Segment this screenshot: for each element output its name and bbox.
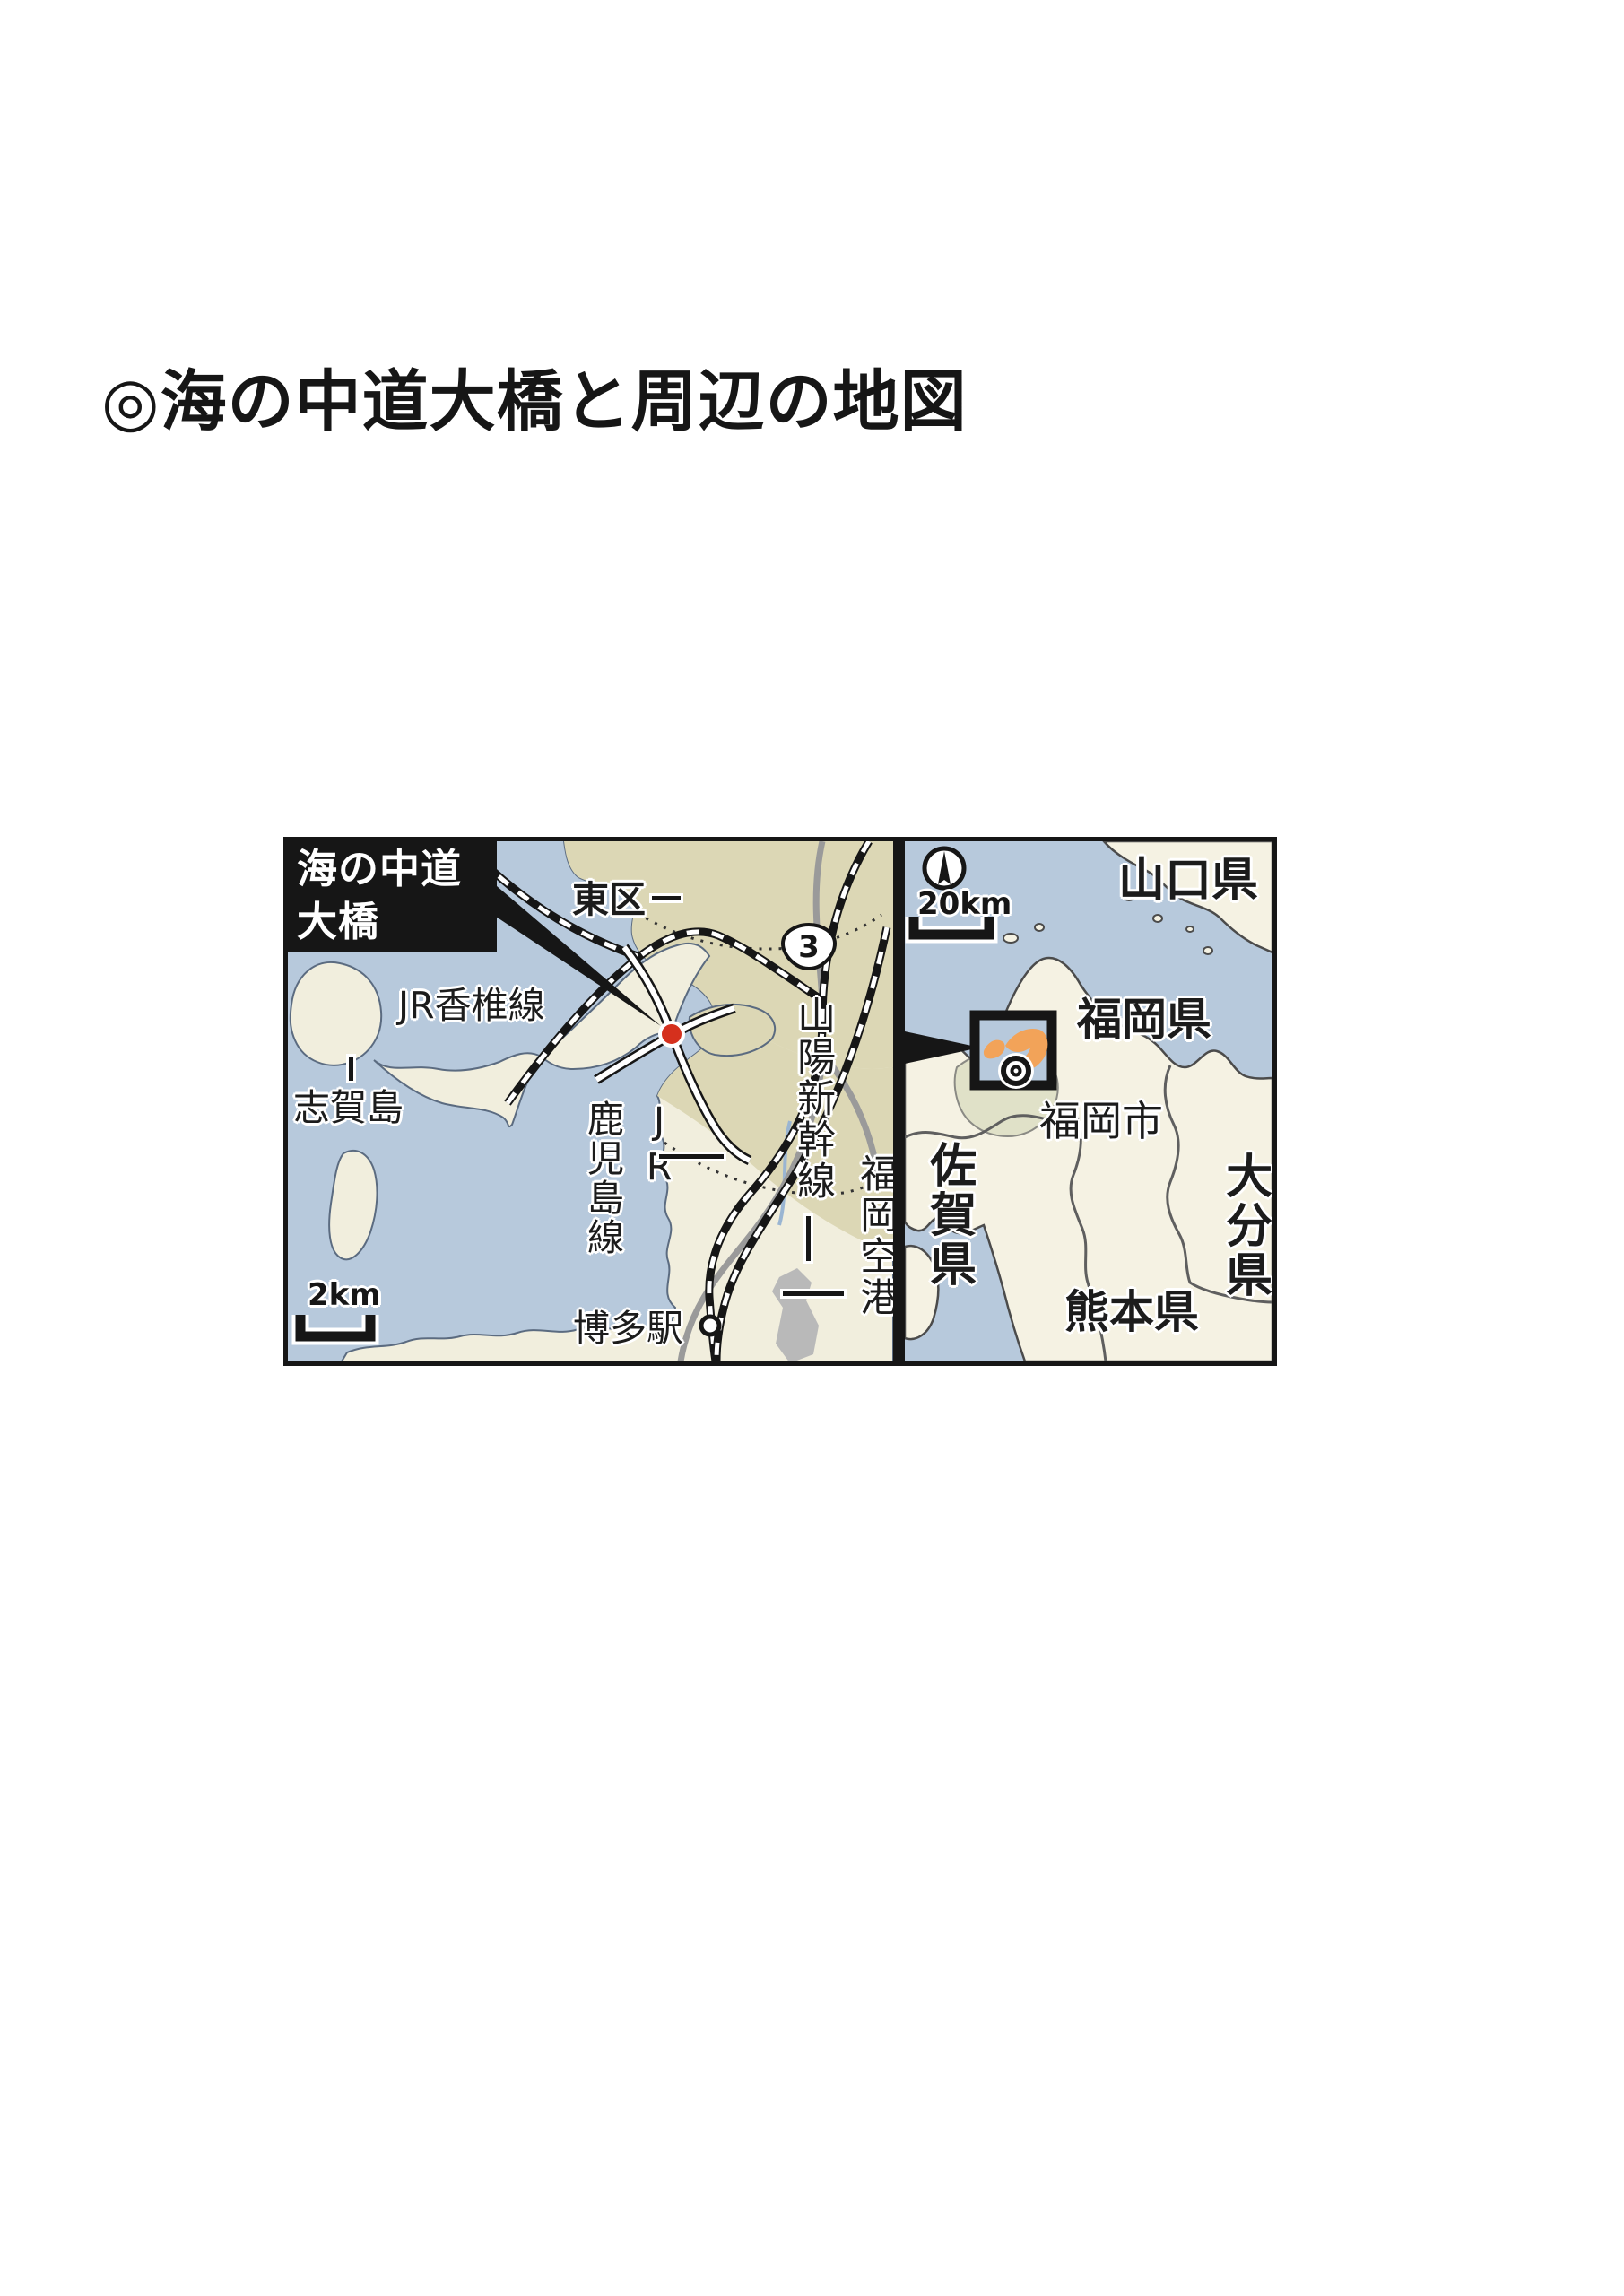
overview-map-panel: 20km 山口県 福岡県 福岡市 佐賀県 大分県 熊本県 [905,841,1272,1361]
shikanoshima-island [291,962,381,1065]
station-circle [701,1317,719,1335]
label-yamaguchi-pref: 山口県 [1118,852,1258,910]
label-fukuoka-pref: 福岡県 [1077,992,1211,1048]
label-saga-pref: 佐賀県 [912,1141,985,1338]
label-shikanoshima: 志賀島 [293,1085,404,1131]
scale-label-2km: 2km [308,1277,381,1313]
label-kumamoto-pref: 熊本県 [1064,1284,1199,1341]
label-fukuoka-city: 福岡市 [1039,1096,1163,1148]
city-marker [998,1053,1034,1089]
kagoshima-line-leader [659,1154,724,1159]
label-jr-kashii-line: JR香椎線 [398,983,545,1029]
route-3-shield: 3 [783,925,835,969]
bridge-label-box: 海の中道 大橋 [288,841,497,952]
label-fukuoka-airport: 福岡空港 [846,1153,893,1360]
label-sanyo-shinkansen: 山陽新幹線 [783,996,843,1215]
scale-label-20km: 20km [917,886,1012,922]
label-higashi-ward: 東区 [572,877,646,923]
label-hakata-station: 博多駅 [573,1306,683,1352]
page-title: ◎海の中道大橋と周辺の地図 [101,348,968,444]
detail-map-panel: 3 海の中道 大橋 東区 JR香椎線 志賀島 JR 鹿児島線 博多駅 山陽新幹線 [288,841,893,1361]
shinkansen-leader [806,1216,811,1261]
route-number: 3 [798,929,820,965]
shikanoshima-leader [349,1057,353,1081]
airport-leader [783,1291,844,1296]
page: ◎海の中道大橋と周辺の地図 [0,0,1624,2296]
label-oita-pref: 大分県 [1208,1152,1272,1349]
red-dot-marker [660,1022,683,1046]
compass-north-icon [925,848,964,888]
map-figure: 3 海の中道 大橋 東区 JR香椎線 志賀島 JR 鹿児島線 博多駅 山陽新幹線 [283,837,1277,1366]
higashi-ward-leader [652,896,681,900]
panel-divider [893,841,905,1361]
